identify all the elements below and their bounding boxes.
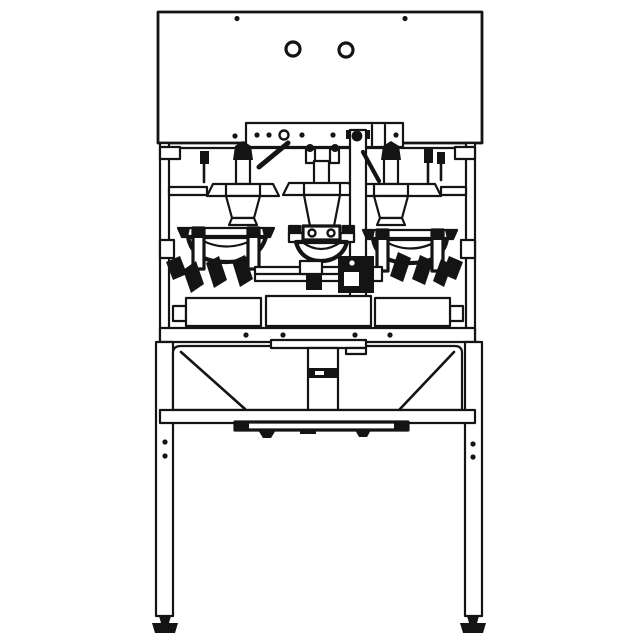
platform-right — [375, 298, 450, 326]
leg-bolt-dot — [162, 439, 167, 444]
right-support-bar — [441, 187, 466, 195]
bowl-post-cap — [377, 230, 388, 240]
chute-joint-gap — [315, 371, 324, 375]
gearbox-window — [344, 272, 359, 286]
slide-end-cap — [394, 422, 408, 430]
slide-tab — [258, 430, 276, 438]
rail-bolt-dot — [387, 332, 392, 337]
bracket-bolt-dot — [330, 132, 335, 137]
panel-hole-right — [339, 43, 353, 57]
head-cone — [226, 196, 260, 218]
plate-step — [346, 348, 366, 354]
base-platform — [173, 296, 463, 326]
frame-right-bracket — [461, 240, 475, 258]
slide-end-cap — [235, 422, 249, 430]
filling-head-center — [283, 144, 355, 226]
rail-bolt-dot — [352, 332, 357, 337]
leg-bolt-dot — [470, 454, 475, 459]
head-stem — [384, 158, 398, 184]
foot-stem-left — [159, 616, 171, 623]
slide-tab — [355, 430, 371, 437]
frame-right-joint — [455, 147, 475, 159]
leg-bolt-dot — [470, 441, 475, 446]
post-cap-dot — [306, 144, 314, 152]
platform-tab-left — [173, 306, 186, 321]
bracket-pivot-circle — [280, 131, 289, 140]
frame-left-bracket — [160, 240, 174, 258]
head-stem — [314, 161, 329, 184]
panel-bolt-dot — [402, 16, 407, 21]
center-chute — [308, 348, 338, 410]
head-cone — [374, 196, 408, 218]
bracket-bolt-dot — [299, 132, 304, 137]
frame-left-joint — [160, 147, 180, 159]
foot-pad-left — [152, 623, 178, 633]
left-support-bar — [169, 187, 207, 195]
leg-right — [465, 342, 482, 616]
center-head-plate — [303, 226, 340, 240]
head-cone — [304, 195, 340, 226]
mechanism-center — [255, 256, 382, 293]
bowl-post-cap — [193, 228, 204, 238]
mount-bracket — [232, 123, 403, 147]
weigh-bowl-left — [178, 228, 274, 269]
column-cap — [365, 130, 370, 139]
head-flange — [207, 184, 279, 196]
head-flange — [283, 183, 355, 195]
bracket-bolt-dot — [393, 132, 398, 137]
slide-plate — [235, 422, 408, 438]
platform-center — [266, 296, 371, 326]
head-flange — [355, 184, 441, 196]
foot-stem-right — [467, 616, 479, 623]
discharge-funnel — [173, 340, 462, 410]
plate-hole — [309, 230, 316, 237]
leg-bolt-dot — [162, 453, 167, 458]
cone-lip — [229, 218, 257, 225]
rail-bolt-dot — [243, 332, 248, 337]
slide-tab — [300, 430, 316, 434]
panel-hole-left — [286, 42, 300, 56]
plate-hole — [328, 230, 335, 237]
machine-drawing — [0, 0, 640, 640]
bracket-bolt-dot — [254, 132, 259, 137]
bowl-support — [300, 261, 322, 274]
aux-knob — [200, 151, 209, 164]
discharge-plate — [271, 340, 366, 348]
platform-tab-right — [450, 306, 463, 321]
bracket-bolt-dot — [232, 133, 237, 138]
leveling-feet — [152, 616, 486, 633]
platform-left — [186, 298, 261, 326]
filling-head-left — [200, 141, 288, 225]
gearbox-dot — [349, 260, 354, 265]
aux-knob — [424, 149, 433, 163]
column-cap — [346, 130, 351, 139]
panel-bolt-dot — [234, 16, 239, 21]
actuator-block — [306, 274, 322, 290]
bowl-post-cap — [432, 230, 443, 240]
rail-bolt-dot — [280, 332, 285, 337]
filling-head-right — [355, 141, 445, 225]
foot-pad-right — [460, 623, 486, 633]
aux-knob — [437, 152, 445, 164]
bracket-bolt-dot — [266, 132, 271, 137]
slide-bar — [235, 422, 408, 430]
machine-figure — [0, 0, 640, 640]
column-pivot-dot — [352, 131, 363, 142]
leg-left — [156, 342, 173, 616]
bowl-post-cap — [248, 228, 259, 238]
post-cap-dot — [331, 144, 339, 152]
head-stem — [236, 158, 250, 184]
cone-lip — [377, 218, 405, 225]
